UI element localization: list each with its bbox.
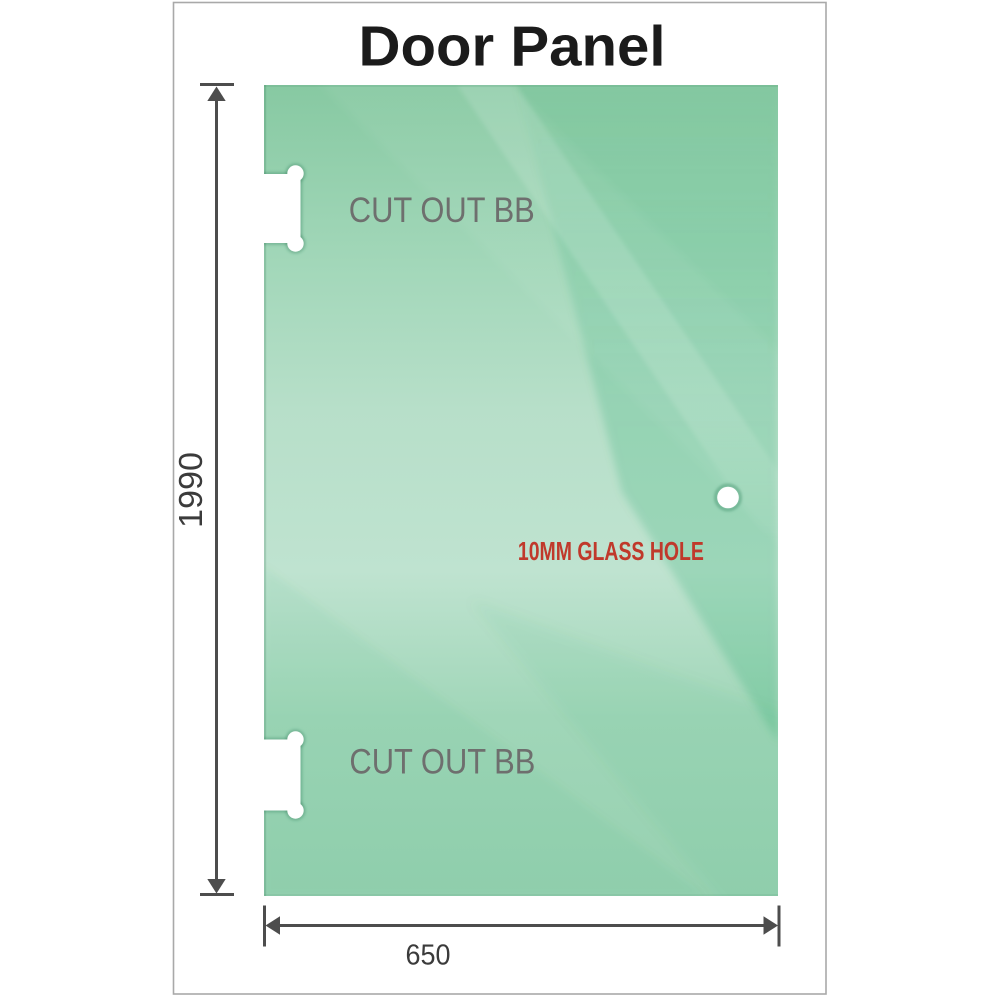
svg-text:CUT OUT BB: CUT OUT BB <box>349 743 535 782</box>
svg-text:Door Panel: Door Panel <box>359 14 666 78</box>
svg-text:CUT OUT BB: CUT OUT BB <box>349 191 535 230</box>
svg-text:1990: 1990 <box>173 452 210 528</box>
svg-text:10MM GLASS HOLE: 10MM GLASS HOLE <box>518 538 704 566</box>
svg-text:650: 650 <box>406 940 451 972</box>
